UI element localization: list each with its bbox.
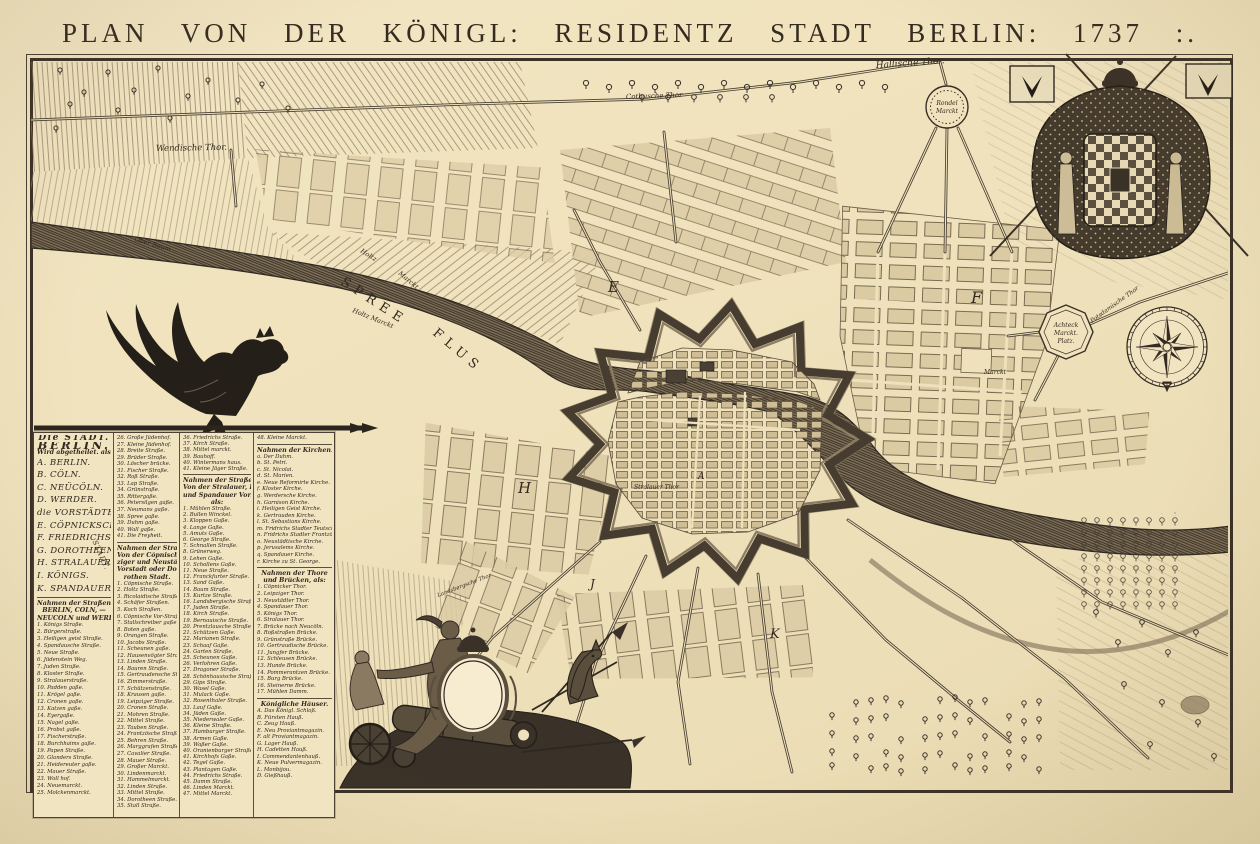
legend-section: Königliche Häuser.A. Das Königl. Schloß.… bbox=[257, 698, 332, 780]
legend-item: K. SPANDAUER. bbox=[37, 583, 111, 596]
legend-item: E. CÖPNICKSCHE. bbox=[37, 520, 111, 533]
rondel-marckt bbox=[926, 86, 968, 128]
map-label: Marckt bbox=[983, 369, 1007, 376]
legend-item: 12. Cronen gaße. bbox=[37, 699, 111, 706]
legend-item: 19. Papen Straße. bbox=[37, 748, 111, 755]
compass-rose-icon bbox=[1127, 307, 1207, 391]
legend-item: i. Heiligen Geist Kirche. bbox=[257, 506, 332, 513]
legend-section: Nahmen der Thoreund Brücken, als:1. Cöpn… bbox=[257, 567, 332, 696]
legend-item: 24. Neuemarckt. bbox=[37, 783, 111, 790]
orchard bbox=[1075, 512, 1184, 612]
legend-section-header: Von der Stralauer, Königs bbox=[183, 484, 251, 491]
legend-item: 48. Kleine Marckt. bbox=[257, 435, 332, 442]
legend-column-divisions: Die STADT.BERLIN.Wird abgetheilet. als:A… bbox=[34, 433, 113, 817]
map-label: Hallische Thor. bbox=[875, 56, 946, 71]
legend-item: 37. Hamburger Straße. bbox=[183, 729, 251, 735]
legend-section-header: NEUCÖLN und WERDER. bbox=[37, 615, 111, 622]
map-label: A bbox=[697, 472, 705, 482]
legend-section-header: ziger und Neustädter bbox=[117, 559, 177, 566]
legend-item: 22. Mauer Straße. bbox=[37, 769, 111, 776]
legend-item: 4. Schäfer Straßen. bbox=[117, 600, 177, 607]
legend-item: D. Gießhauß. bbox=[257, 773, 332, 780]
legend-item: 15. Gertraudensche Straße. bbox=[117, 672, 177, 679]
legend-section: Nahmen der Straßen VonBERLIN, CÖLN, —NEU… bbox=[37, 597, 111, 797]
map-label: Platz. bbox=[1056, 338, 1074, 345]
legend-section-header: Wird abgetheilet. als: bbox=[37, 449, 111, 456]
map-label: E bbox=[607, 278, 619, 296]
legend-item: 18. Burchhaims gaße. bbox=[37, 741, 111, 748]
legend-item: 13. Katzen gaße. bbox=[37, 706, 111, 713]
legend-section-header: Nahmen der Straßen, bbox=[117, 545, 177, 552]
map-label: Stralauer Thor bbox=[634, 484, 680, 491]
legend-section-header: und Brücken, als: bbox=[257, 577, 332, 584]
legend-item: 5. Neue Straße. bbox=[37, 650, 111, 657]
legend-item: 15. Nagel gaße. bbox=[37, 720, 111, 727]
legend-section-header: Nahmen der Thore bbox=[257, 570, 332, 577]
legend-section-header: Königliche Häuser. bbox=[257, 701, 332, 708]
legend-item: 11. Scheunen gaße. bbox=[117, 646, 177, 653]
legend-section-header: Nahmen der Straßen Von bbox=[37, 600, 111, 607]
legend-item: I. KÖNIGS. bbox=[37, 570, 111, 583]
legend-item: 6. Jüdenstein Weg. bbox=[37, 657, 111, 664]
inner-city-blocks bbox=[608, 348, 822, 534]
legend-section-header: als: bbox=[183, 499, 251, 506]
legend-section-header: und Spandauer Vorstädte bbox=[183, 492, 251, 499]
medallion bbox=[439, 656, 507, 734]
legend-item: 9. Orangen Straße. bbox=[117, 633, 177, 640]
legend-section-header: BERLIN. bbox=[37, 442, 111, 449]
legend-item: 7. Juden Straße. bbox=[37, 664, 111, 671]
legend-item: 23. Woll hof. bbox=[37, 776, 111, 783]
map-label: Achteck bbox=[1053, 322, 1079, 329]
legend-item: 11. Krögel gaße. bbox=[37, 692, 111, 699]
legend-section: Nahmen der Kirchen.a. Der Duhm.b. St. Pe… bbox=[257, 444, 332, 566]
legend-item: 27. Cavalier Straße. bbox=[117, 751, 177, 758]
legend-item: 9. Stralauerstraße. bbox=[37, 678, 111, 685]
legend-item: 37. Neumans gaße. bbox=[117, 507, 177, 514]
flag-right bbox=[1186, 64, 1232, 98]
antique-map-page: PLAN VON DER KÖNIGL: RESIDENTZ STADT BER… bbox=[0, 0, 1260, 844]
legend-section: Die STADT.BERLIN.Wird abgetheilet. als:A… bbox=[37, 435, 111, 595]
map-label: Rondel bbox=[935, 100, 957, 107]
legend-item: die VORSTÄDTE. bbox=[37, 507, 111, 520]
legend-column-churches-gates: 48. Kleine Marckt.Nahmen der Kirchen.a. … bbox=[253, 433, 334, 817]
legend-section-header: Vorstadt oder Do- bbox=[117, 566, 177, 573]
legend-item: 19. Bernauische Straße. bbox=[183, 618, 251, 624]
legend-item: 7. Stallschreiber gaße. bbox=[117, 620, 177, 627]
legend-column-streets-2: 36. Friedrichs Straße.37. Kirch Straße.3… bbox=[179, 433, 253, 817]
legend-item: 16. Probst gaße. bbox=[37, 727, 111, 734]
legend-item: 2. Bürgerstraße. bbox=[37, 629, 111, 636]
legend-section-header: Von der Cöpnischer Leip- bbox=[117, 552, 177, 559]
legend-item: 10. Padden gaße. bbox=[37, 685, 111, 692]
map-label: Marckt. bbox=[1053, 330, 1078, 337]
map-label: Wendische Thor. bbox=[156, 143, 227, 154]
legend-section-header: Nahmen der Kirchen. bbox=[257, 447, 332, 454]
legend-item: 20. Cronen Straße. bbox=[117, 705, 177, 712]
map-label: H bbox=[517, 479, 532, 497]
legend-section-header: rothen Stadt. bbox=[117, 574, 177, 581]
legend-item: 21. Heidereuter gaße. bbox=[37, 762, 111, 769]
legend-item: 24. Frantzösche Straße. bbox=[117, 731, 177, 738]
legend-item: 29. Großer Marckt. bbox=[117, 764, 177, 771]
legend-item: 4. Spandausche Straße. bbox=[37, 643, 111, 650]
map-label: J bbox=[587, 577, 596, 591]
prussian-eagle-sculpture bbox=[34, 302, 378, 446]
legend-item: 1. Königs Straße. bbox=[37, 622, 111, 629]
legend-item: l. St. Sebastians Kirche. bbox=[257, 519, 332, 526]
legend-section: 36. Friedrichs Straße.37. Kirch Straße.3… bbox=[183, 435, 251, 472]
legend-column-streets-1: 26. Große Jüdenhof.27. Kleine Jüdenhof.2… bbox=[113, 433, 179, 817]
legend-item: 3. Heiligen geist Straße. bbox=[37, 636, 111, 643]
legend-item: 41. Kleine Jäger Straße. bbox=[183, 466, 251, 472]
legend-item: D. WERDER. bbox=[37, 494, 111, 507]
legend-item: 30. Löscher brücke. bbox=[117, 461, 177, 468]
legend-section-header: BERLIN, CÖLN, — bbox=[37, 607, 111, 614]
legend-section-header: Nahmen der Straßen, bbox=[183, 477, 251, 484]
legend-item: 10. Gertraudische Brücke. bbox=[257, 643, 332, 650]
map-label: F bbox=[970, 288, 983, 307]
legend-item: B. CÖLN. bbox=[37, 469, 111, 482]
legend-section: 26. Große Jüdenhof.27. Kleine Jüdenhof.2… bbox=[117, 435, 177, 540]
legend-item: 25. Molckenmarckt. bbox=[37, 790, 111, 797]
legend-item: r. Kirche zu St. George. bbox=[257, 559, 332, 566]
legend-section-header: Die STADT. bbox=[37, 435, 111, 442]
map-label: K bbox=[769, 627, 781, 642]
legend-item: n. Fridrichs Stadter Frantzösische Kirch… bbox=[257, 532, 332, 539]
legend-item: 47. Mittel Marckt. bbox=[183, 791, 251, 797]
legend-section: Nahmen der Straßen,Von der Stralauer, Kö… bbox=[183, 474, 251, 797]
legend-item: 41. Die Freyheit. bbox=[117, 533, 177, 540]
legend-item: 8. Kloster Straße. bbox=[37, 671, 111, 678]
legend-item: 22. Marianen Straße. bbox=[183, 636, 251, 642]
map-label: Cotbusche Thor bbox=[626, 91, 683, 101]
legend-section: 48. Kleine Marckt. bbox=[257, 435, 332, 442]
legend-item: 32. Rosenthaler Straße. bbox=[183, 698, 251, 704]
map-label: Marckt bbox=[935, 108, 959, 115]
legend-panel: Die STADT.BERLIN.Wird abgetheilet. als:A… bbox=[33, 432, 335, 818]
legend-item: 35. Stall Straße. bbox=[117, 803, 177, 810]
legend-item: 17. Fischerstraße. bbox=[37, 734, 111, 741]
flag-left bbox=[1010, 66, 1054, 102]
legend-item: 31. Hammelmarckt. bbox=[117, 777, 177, 784]
legend-item: 20. Glanders Straße. bbox=[37, 755, 111, 762]
legend-item: K. Neue Pulvermagazin. bbox=[257, 760, 332, 767]
legend-item: C. NEÜCÖLN. bbox=[37, 482, 111, 495]
legend-section: Nahmen der Straßen,Von der Cöpnischer Le… bbox=[117, 542, 177, 810]
legend-item: 17. Mühlen Damm. bbox=[257, 689, 332, 696]
legend-item: A. BERLIN. bbox=[37, 457, 111, 470]
legend-item: 14. Eyergaße. bbox=[37, 713, 111, 720]
legend-item: 26. Große Jüdenhof. bbox=[117, 435, 177, 442]
legend-item: 28. Schönhausische Straße. bbox=[183, 674, 251, 680]
